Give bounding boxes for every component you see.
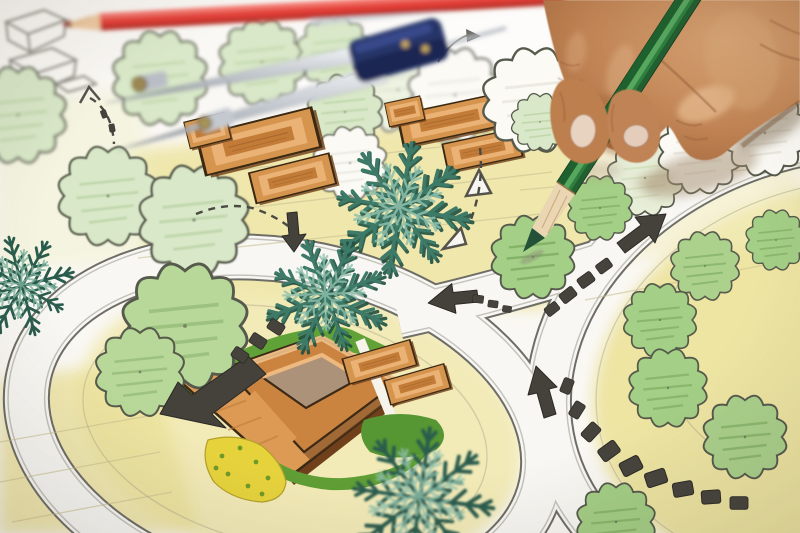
- landscape-plan-photo: [0, 0, 800, 533]
- garden-plan-scene: [0, 0, 800, 533]
- vignette-overlay: [0, 0, 800, 533]
